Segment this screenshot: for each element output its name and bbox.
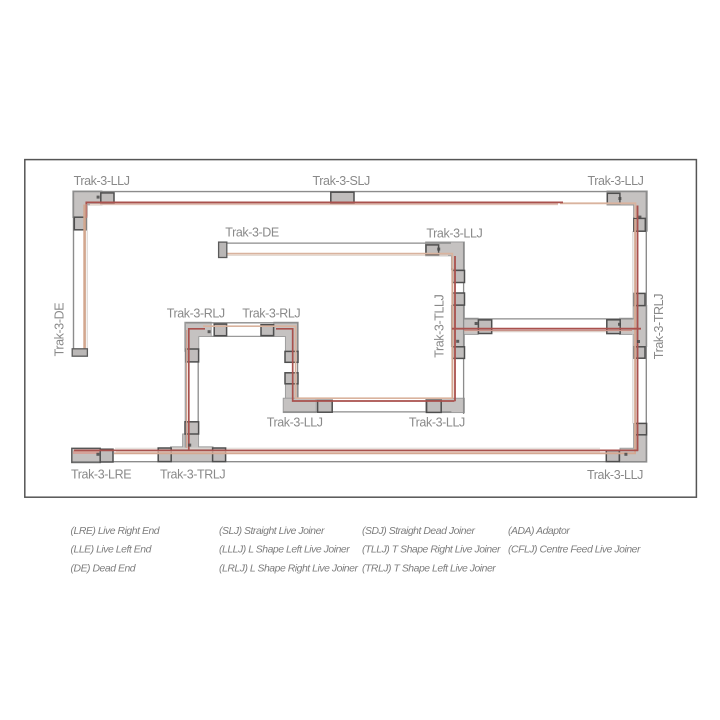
svg-text:(TRLJ) T Shape Left Live Joine: (TRLJ) T Shape Left Live Joiner xyxy=(362,563,496,574)
svg-text:Trak-3-LRE: Trak-3-LRE xyxy=(71,468,131,482)
svg-text:(LLLJ) L Shape Left Live Joine: (LLLJ) L Shape Left Live Joiner xyxy=(219,545,350,556)
svg-text:Trak-3-RLJ: Trak-3-RLJ xyxy=(242,307,300,321)
svg-text:(DE) Dead End: (DE) Dead End xyxy=(71,563,137,574)
svg-text:(TLLJ) T Shape Right Live Join: (TLLJ) T Shape Right Live Joiner xyxy=(362,545,501,556)
svg-text:Trak-3-RLJ: Trak-3-RLJ xyxy=(167,307,225,321)
svg-text:(LRE) Live Right End: (LRE) Live Right End xyxy=(71,526,161,537)
svg-text:Trak-3-SLJ: Trak-3-SLJ xyxy=(313,174,371,188)
svg-text:Trak-3-LLJ: Trak-3-LLJ xyxy=(409,416,465,430)
svg-text:(SDJ) Straight Dead Joiner: (SDJ) Straight Dead Joiner xyxy=(362,526,475,537)
svg-text:Trak-3-DE: Trak-3-DE xyxy=(53,303,67,357)
svg-text:Trak-3-TLLJ: Trak-3-TLLJ xyxy=(433,294,447,357)
svg-text:Trak-3-TRLJ: Trak-3-TRLJ xyxy=(160,468,225,482)
svg-text:Trak-3-LLJ: Trak-3-LLJ xyxy=(588,174,644,188)
svg-text:Trak-3-LLJ: Trak-3-LLJ xyxy=(267,416,323,430)
svg-text:Trak-3-DE: Trak-3-DE xyxy=(225,226,279,240)
svg-text:Trak-3-LLJ: Trak-3-LLJ xyxy=(74,174,130,188)
svg-text:(SLJ) Straight Live Joiner: (SLJ) Straight Live Joiner xyxy=(219,526,325,537)
svg-text:(LRLJ) L Shape Right Live Join: (LRLJ) L Shape Right Live Joiner xyxy=(219,563,358,574)
svg-text:(CFLJ) Centre Feed Live Joiner: (CFLJ) Centre Feed Live Joiner xyxy=(508,545,641,556)
svg-text:(ADA) Adaptor: (ADA) Adaptor xyxy=(508,526,570,537)
svg-text:Trak-3-TRLJ: Trak-3-TRLJ xyxy=(652,294,666,359)
svg-text:(LLE) Live Left End: (LLE) Live Left End xyxy=(71,545,153,556)
svg-text:Trak-3-LLJ: Trak-3-LLJ xyxy=(426,227,482,241)
svg-text:Trak-3-LLJ: Trak-3-LLJ xyxy=(587,468,643,482)
